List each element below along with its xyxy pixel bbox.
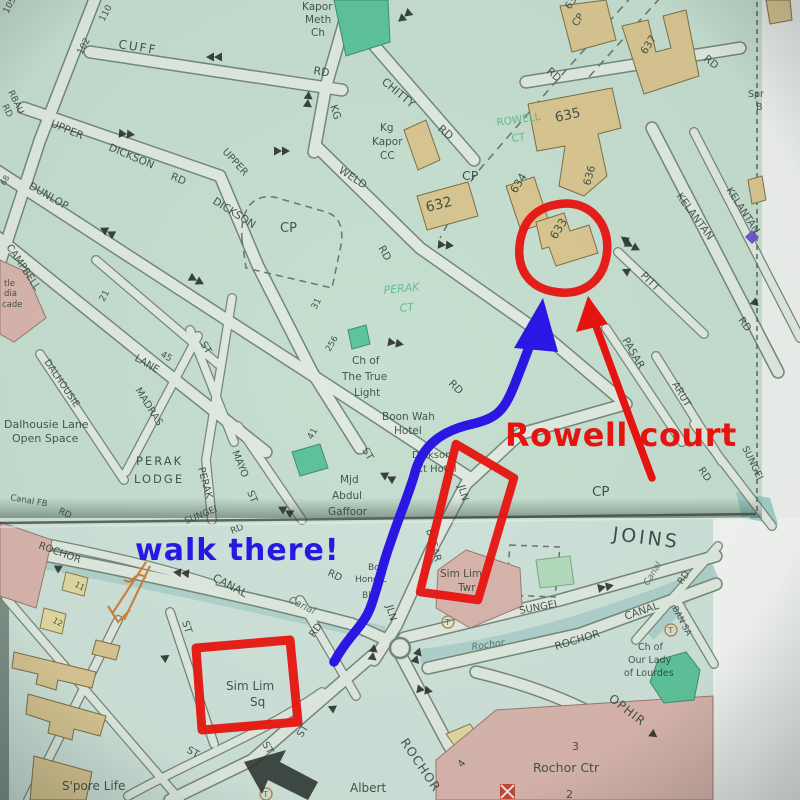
walk-there-label: walk there! bbox=[135, 533, 340, 568]
annotated-map-photo: KaporMethChCUFFRD110102105RBAURDUPPERDIC… bbox=[0, 0, 800, 800]
rowell-court-label: Rowell court bbox=[505, 416, 737, 454]
photo-vignette bbox=[0, 0, 800, 800]
street-map: KaporMethChCUFFRD110102105RBAURDUPPERDIC… bbox=[0, 0, 800, 800]
